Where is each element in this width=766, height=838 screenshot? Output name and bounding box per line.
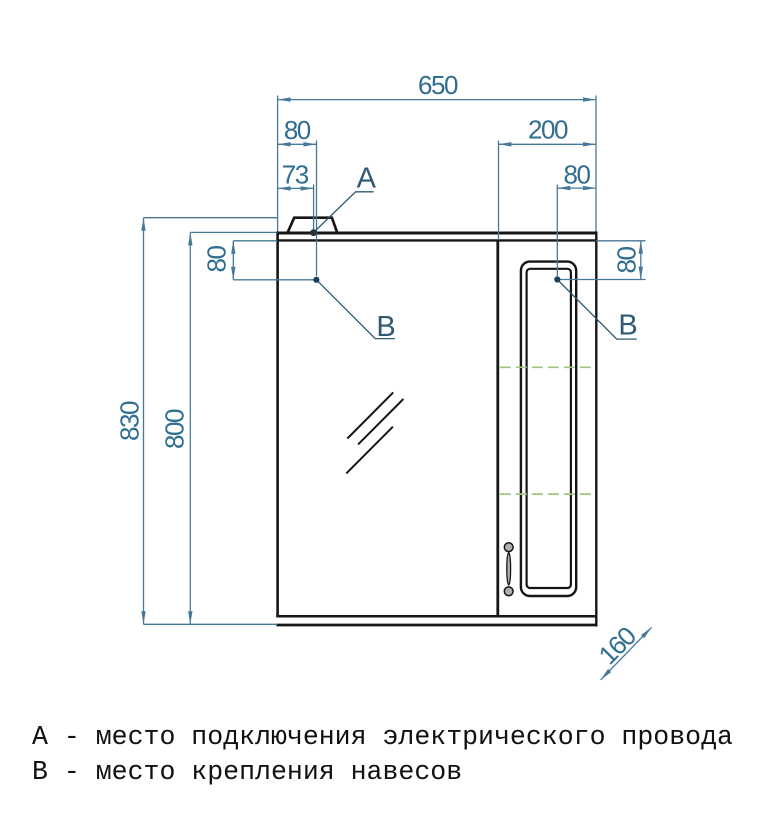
svg-text:200: 200 [528,115,568,145]
svg-text:80: 80 [202,246,232,273]
svg-text:80: 80 [284,115,311,145]
svg-text:830: 830 [115,401,145,441]
svg-text:В - место крепления навесов: В - место крепления навесов [32,757,462,787]
svg-text:800: 800 [160,409,190,449]
svg-text:80: 80 [612,247,642,274]
svg-text:В: В [376,311,395,343]
svg-text:А: А [357,163,377,195]
svg-text:А - место подключения электрич: А - место подключения электрического про… [32,722,733,752]
svg-text:B: B [618,310,637,342]
svg-text:80: 80 [564,160,591,190]
svg-text:73: 73 [282,160,309,190]
svg-text:650: 650 [418,70,458,100]
